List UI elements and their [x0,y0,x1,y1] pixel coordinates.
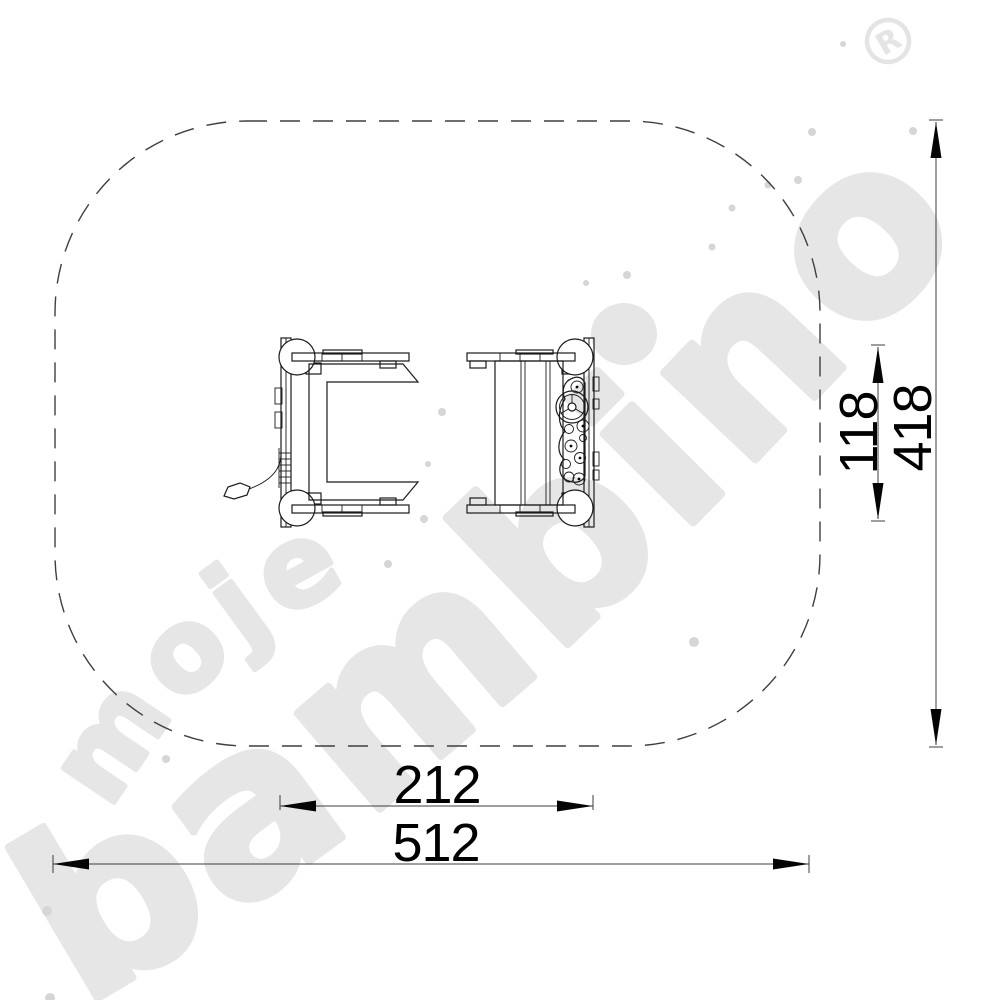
dimension-label-total-width: 512 [392,813,479,873]
decor-dot [729,205,736,212]
dimension-label-total-height: 418 [883,384,943,471]
decor-dot [794,176,802,184]
equipment-left-module [224,338,418,527]
decor-dot [623,271,631,279]
arrow-right-icon [557,801,593,812]
drawing-svg: moje bambino R [0,0,1000,1000]
dimension-label-inner-height: 118 [829,391,889,474]
registered-trademark-icon: R [859,12,916,69]
arrow-down-icon [931,709,942,745]
decor-dot [45,993,55,1000]
decor-dot [689,637,699,647]
arrow-up-icon [931,122,942,158]
decor-dot [909,127,917,135]
gear-center [576,386,579,389]
watermark-word-bambino-textpath: bambino [0,80,1000,1000]
decor-dot [420,515,428,523]
left-bottom-plank-overlay [323,512,362,516]
decor-dot [709,244,716,251]
decor-dot [583,280,589,286]
right-top-plank-end-tab [470,361,486,368]
seat-bracket-panel [309,364,418,500]
watermark-word-bambino: bambino [0,80,1000,1000]
dimension-label-inner-width: 212 [393,755,480,815]
arrow-right-icon [773,859,809,870]
decor-dot [425,461,431,467]
knob-center [582,425,585,428]
watermark-i-dot-blob [591,303,657,365]
decor-dot [42,906,52,916]
steering-wheel-hub [568,403,576,411]
decor-dot [808,128,816,136]
gear-center [570,445,573,448]
knob-center [578,478,581,481]
technical-drawing-canvas: moje bambino R [0,0,1000,1000]
decor-dot [840,41,846,47]
decor-dot [438,408,446,416]
tiller-handle [224,483,250,499]
arrow-down-icon [873,483,884,519]
decor-dot [384,560,392,568]
decor-dot [162,755,170,763]
knob-center [579,457,582,460]
left-bottom-plank-end-tab [380,498,396,505]
tiller-rope [249,451,281,489]
